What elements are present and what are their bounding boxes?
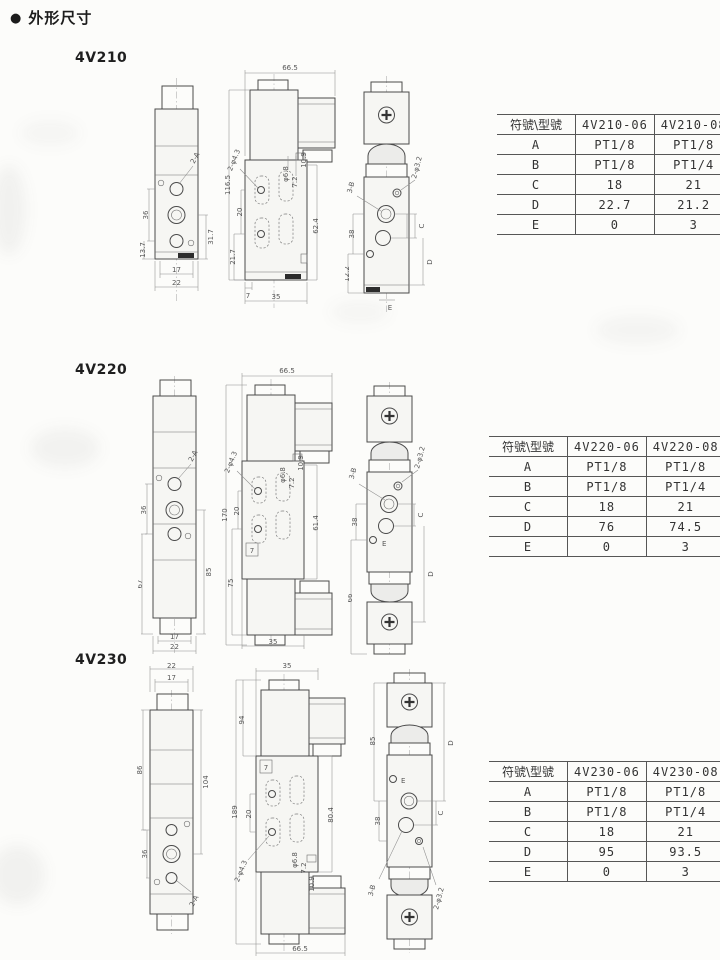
section-label-4v210: 4V210 bbox=[75, 50, 127, 66]
col-header: 4V230-08 bbox=[646, 762, 720, 782]
dim-label: 36 bbox=[140, 505, 148, 514]
row-symbol: A bbox=[489, 457, 568, 477]
dim-label: 12.2 bbox=[345, 266, 351, 282]
spec-value: PT1/8 bbox=[576, 135, 655, 155]
spec-value: 22.7 bbox=[576, 195, 655, 215]
spec-value: PT1/8 bbox=[576, 155, 655, 175]
dim-label: 10.9 bbox=[297, 455, 305, 471]
dim-label: C bbox=[417, 512, 425, 517]
dim-label: 94 bbox=[238, 715, 246, 724]
dim-label: 3-B bbox=[348, 467, 358, 480]
dim-label: 67 bbox=[138, 580, 144, 589]
dim-label: 7.2 bbox=[291, 176, 299, 187]
spec-table-4v220: 符號\型號 4V220-06 4V220-08 APT1/8PT1/8 BPT1… bbox=[489, 436, 720, 557]
dim-label: 3-B bbox=[346, 181, 357, 194]
col-header: 4V230-06 bbox=[568, 762, 647, 782]
row-symbol: D bbox=[489, 842, 568, 862]
spec-value: PT1/8 bbox=[568, 457, 647, 477]
dim-label: 116.5 bbox=[225, 175, 232, 195]
dim-label: 35 bbox=[272, 293, 281, 301]
dim-label: 36 bbox=[141, 849, 149, 858]
spec-value: 21.2 bbox=[654, 195, 720, 215]
dim-label: 2-φ4.3 bbox=[233, 859, 249, 883]
4v220-side-view: 66.5 7 φ6.8 7.2 10.9 170 2-φ4.3 20 75 61… bbox=[222, 365, 362, 650]
dim-label: 17 bbox=[172, 266, 181, 274]
dim-label: 2-φ3.2 bbox=[413, 445, 427, 469]
dim-label: 86 bbox=[136, 765, 144, 774]
dim-label: 35 bbox=[269, 638, 278, 646]
row-symbol: C bbox=[489, 822, 568, 842]
dim-label: 66 bbox=[348, 593, 354, 602]
spec-value: 76 bbox=[568, 517, 647, 537]
dim-label: D bbox=[427, 571, 435, 576]
section-label-4v230: 4V230 bbox=[75, 652, 127, 668]
dim-label: 7.2 bbox=[300, 862, 308, 873]
col-header: 4V210-08 bbox=[654, 115, 720, 135]
dim-label: 10.9 bbox=[308, 876, 316, 892]
dim-label: D bbox=[447, 740, 455, 745]
dim-label: 66.5 bbox=[292, 945, 308, 953]
row-symbol: C bbox=[489, 497, 568, 517]
dim-label: 3-B bbox=[368, 884, 377, 897]
spec-value: PT1/8 bbox=[646, 457, 720, 477]
4v230-side-view: 35 7 φ6.8 7.2 10.9 189 94 20 2-φ4.3 80.4… bbox=[232, 660, 377, 960]
spec-value: 18 bbox=[568, 497, 647, 517]
row-symbol: A bbox=[497, 135, 576, 155]
spec-value: 18 bbox=[576, 175, 655, 195]
row-symbol: E bbox=[497, 215, 576, 235]
col-header: 符號\型號 bbox=[489, 762, 568, 782]
spec-value: PT1/8 bbox=[646, 782, 720, 802]
section-label-4v220: 4V220 bbox=[75, 362, 127, 378]
col-header: 4V220-06 bbox=[568, 437, 647, 457]
bullet-icon: ● bbox=[10, 11, 22, 26]
spec-value: 3 bbox=[654, 215, 720, 235]
4v210-side-view: 66.5 φ6.8 7.2 10.9 116.5 2-φ4.3 20 21.7 … bbox=[225, 58, 365, 310]
col-header: 符號\型號 bbox=[497, 115, 576, 135]
dim-label: 66.5 bbox=[282, 64, 298, 72]
dim-label: 75 bbox=[227, 579, 235, 588]
spec-value: 0 bbox=[576, 215, 655, 235]
dim-label: 170 bbox=[222, 508, 229, 521]
dim-label: 35 bbox=[283, 662, 292, 670]
dim-label: 20 bbox=[236, 208, 244, 217]
spec-value: PT1/8 bbox=[568, 802, 647, 822]
col-header: 4V220-08 bbox=[646, 437, 720, 457]
dim-label: φ6.8 bbox=[291, 852, 299, 868]
spec-value: 95 bbox=[568, 842, 647, 862]
row-symbol: C bbox=[497, 175, 576, 195]
spec-value: 18 bbox=[568, 822, 647, 842]
dim-label: 85 bbox=[369, 737, 377, 746]
dim-label: 31.7 bbox=[207, 229, 215, 245]
4v230-end-view: E 3-B 2-φ3.2 85 38 D C bbox=[368, 665, 480, 955]
spec-value: 93.5 bbox=[646, 842, 720, 862]
dim-label: 2-φ4.3 bbox=[223, 450, 239, 474]
spec-value: PT1/4 bbox=[646, 477, 720, 497]
dim-label: 7 bbox=[246, 292, 250, 300]
dim-label: E bbox=[401, 777, 405, 785]
col-header: 符號\型號 bbox=[489, 437, 568, 457]
spec-value: PT1/8 bbox=[654, 135, 720, 155]
dim-label: 2-φ3.2 bbox=[432, 886, 446, 910]
dim-label: 10.9 bbox=[300, 152, 308, 168]
dim-label: 7.2 bbox=[288, 477, 296, 488]
dim-label: 38 bbox=[374, 817, 382, 826]
row-symbol: E bbox=[489, 537, 568, 557]
spec-value: 0 bbox=[568, 537, 647, 557]
row-symbol: D bbox=[489, 517, 568, 537]
dim-label: 85 bbox=[205, 568, 213, 577]
spec-value: PT1/8 bbox=[568, 782, 647, 802]
row-symbol: A bbox=[489, 782, 568, 802]
dim-label: 20 bbox=[245, 810, 253, 819]
scan-smudge bbox=[20, 120, 80, 146]
dim-label: 21.7 bbox=[229, 249, 237, 265]
dim-label: 13.7 bbox=[140, 242, 147, 258]
4v220-end-view: E 3-B 2-φ3.2 38 66 C D bbox=[348, 378, 463, 656]
dim-label: 17 bbox=[167, 674, 176, 682]
dim-label: 62.4 bbox=[312, 218, 320, 234]
col-header: 4V210-06 bbox=[576, 115, 655, 135]
row-symbol: D bbox=[497, 195, 576, 215]
spec-value: 74.5 bbox=[646, 517, 720, 537]
spec-table-4v210: 符號\型號 4V210-06 4V210-08 APT1/8PT1/8 BPT1… bbox=[497, 114, 720, 235]
spec-value: 3 bbox=[646, 537, 720, 557]
spec-value: 21 bbox=[646, 497, 720, 517]
dim-label: 104 bbox=[202, 775, 210, 789]
scan-smudge bbox=[0, 165, 26, 255]
spec-table-4v230: 符號\型號 4V230-06 4V230-08 APT1/8PT1/8 BPT1… bbox=[489, 761, 720, 882]
dim-label: E bbox=[382, 540, 386, 548]
dim-label: 20 bbox=[233, 507, 241, 516]
dim-label: 189 bbox=[232, 805, 239, 818]
spec-value: PT1/4 bbox=[654, 155, 720, 175]
dim-label: C bbox=[437, 810, 445, 815]
dim-label: 2-φ3.2 bbox=[410, 155, 424, 179]
dim-label: φ6.8 bbox=[282, 166, 290, 182]
4v210-end-view: 3-B 2-φ3.2 38 12.2 C D E bbox=[345, 68, 460, 316]
dim-label: 7 bbox=[250, 547, 254, 555]
dim-label: 22 bbox=[170, 643, 179, 651]
row-symbol: B bbox=[489, 802, 568, 822]
dim-label: 7 bbox=[264, 764, 268, 772]
dim-label: 38 bbox=[348, 230, 356, 239]
page-title: ●外形尺寸 bbox=[10, 7, 92, 28]
dim-label: 38 bbox=[351, 518, 359, 527]
spec-value: 0 bbox=[568, 862, 647, 882]
scan-smudge bbox=[30, 428, 100, 468]
dim-label: 2-φ4.3 bbox=[226, 148, 242, 172]
dim-label: C bbox=[418, 223, 426, 228]
spec-value: 21 bbox=[646, 822, 720, 842]
dim-label: 66.5 bbox=[279, 367, 295, 375]
spec-value: PT1/8 bbox=[568, 477, 647, 497]
dim-label: 22 bbox=[172, 279, 181, 287]
dim-label: 80.4 bbox=[327, 807, 335, 823]
dim-label: E bbox=[388, 304, 392, 312]
row-symbol: B bbox=[497, 155, 576, 175]
spec-value: 21 bbox=[654, 175, 720, 195]
dim-label: 61.4 bbox=[312, 515, 320, 531]
dim-label: D bbox=[426, 259, 434, 264]
dim-label: 17 bbox=[170, 633, 179, 641]
dim-label: φ6.8 bbox=[279, 467, 287, 483]
spec-value: PT1/4 bbox=[646, 802, 720, 822]
dim-label: 36 bbox=[142, 210, 150, 219]
scan-smudge bbox=[595, 315, 680, 345]
row-symbol: E bbox=[489, 862, 568, 882]
row-symbol: B bbox=[489, 477, 568, 497]
page-title-text: 外形尺寸 bbox=[28, 9, 92, 27]
scan-smudge bbox=[0, 845, 45, 905]
dim-label: 22 bbox=[167, 662, 176, 670]
spec-value: 3 bbox=[646, 862, 720, 882]
